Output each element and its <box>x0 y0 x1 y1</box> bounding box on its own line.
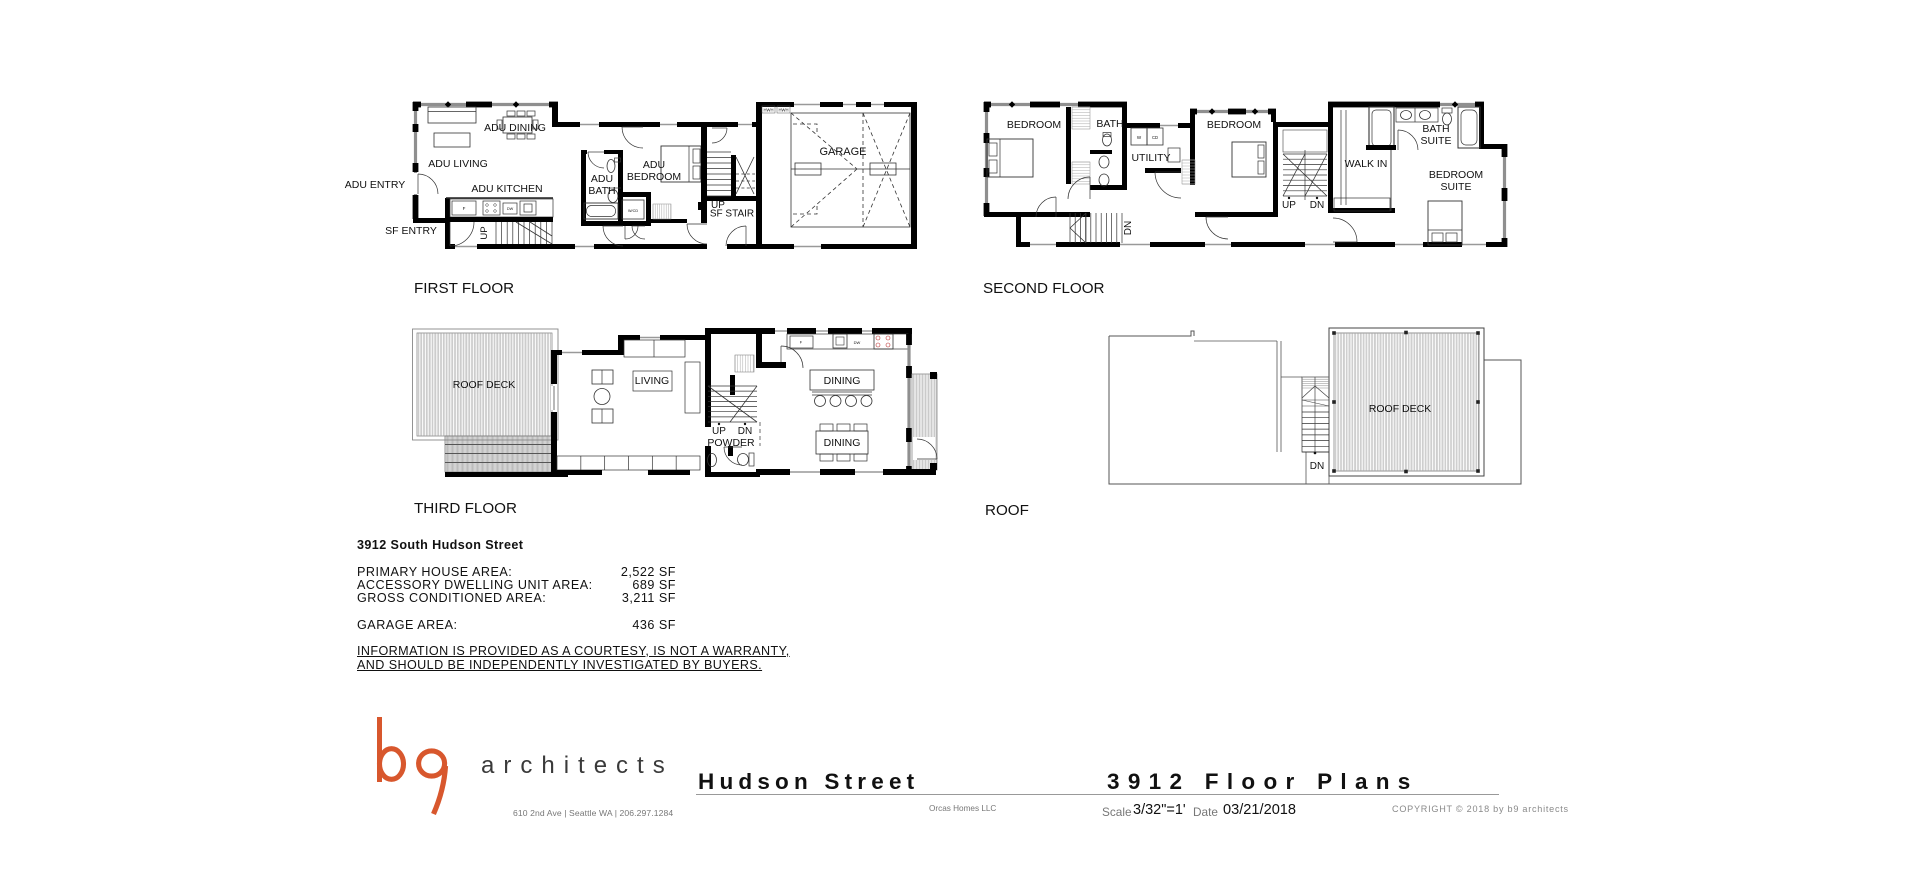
svg-text:ROOF DECK: ROOF DECK <box>453 379 515 391</box>
svg-text:SF ENTRY: SF ENTRY <box>385 225 437 237</box>
svg-text:WALK IN: WALK IN <box>1345 158 1388 170</box>
svg-text:DN: DN <box>738 426 752 437</box>
svg-text:BEDROOM: BEDROOM <box>627 171 681 183</box>
svg-text:W: W <box>1137 135 1142 140</box>
svg-text:BATH: BATH <box>1096 118 1123 130</box>
svg-text:ADU LIVING: ADU LIVING <box>428 158 488 170</box>
svg-text:CD: CD <box>1152 135 1158 140</box>
svg-text:BEDROOM: BEDROOM <box>1007 119 1061 131</box>
svg-text:BEDROOM: BEDROOM <box>1429 169 1483 181</box>
svg-text:SUITE: SUITE <box>1421 135 1452 147</box>
svg-text:DINING: DINING <box>824 437 861 449</box>
svg-text:F: F <box>800 340 803 345</box>
svg-text:BEDROOM: BEDROOM <box>1207 119 1261 131</box>
svg-text:DN: DN <box>1310 461 1324 472</box>
svg-text:ADU DINING: ADU DINING <box>484 122 546 134</box>
svg-text:UP: UP <box>479 226 490 239</box>
svg-text:DW: DW <box>507 207 514 211</box>
svg-text:GARAGE: GARAGE <box>819 146 866 158</box>
svg-text:SF STAIR: SF STAIR <box>710 209 754 220</box>
svg-text:DN: DN <box>1310 200 1324 211</box>
svg-text:HWH: HWH <box>778 108 788 113</box>
svg-text:UTILITY: UTILITY <box>1131 152 1170 164</box>
svg-text:LIVING: LIVING <box>635 375 669 387</box>
svg-text:BATH: BATH <box>588 185 615 197</box>
svg-text:W/CD: W/CD <box>628 209 638 213</box>
svg-text:HWH: HWH <box>763 108 773 113</box>
svg-text:ROOF DECK: ROOF DECK <box>1369 403 1431 415</box>
svg-text:BATH: BATH <box>1422 123 1449 135</box>
svg-text:ADU ENTRY: ADU ENTRY <box>345 179 405 191</box>
svg-text:DINING: DINING <box>824 375 861 387</box>
svg-text:DW: DW <box>854 340 861 345</box>
svg-text:F: F <box>463 206 466 211</box>
svg-text:SUITE: SUITE <box>1441 181 1472 193</box>
svg-text:ADU: ADU <box>643 159 665 171</box>
svg-text:UP: UP <box>712 426 726 437</box>
svg-text:UP: UP <box>1282 200 1296 211</box>
svg-text:ADU KITCHEN: ADU KITCHEN <box>471 183 542 195</box>
svg-text:ADU: ADU <box>591 173 613 185</box>
svg-text:DN: DN <box>1123 221 1134 235</box>
